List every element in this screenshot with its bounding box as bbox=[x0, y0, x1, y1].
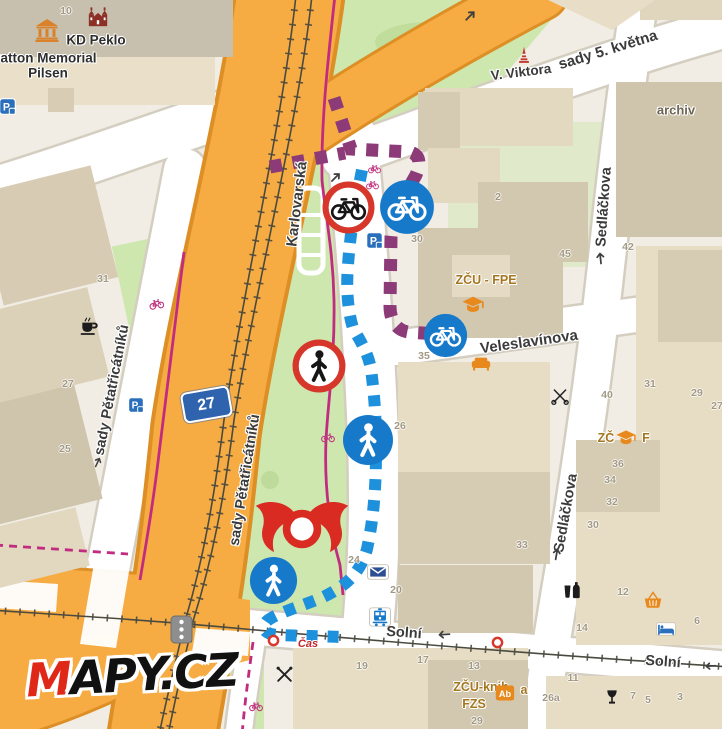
mapy-logo-m: M bbox=[25, 651, 72, 707]
street-label: Veleslavínova bbox=[479, 327, 579, 358]
bike-route-circle-icon[interactable] bbox=[379, 179, 435, 235]
house-number: 34 bbox=[604, 474, 616, 486]
sofa-icon[interactable] bbox=[471, 353, 491, 373]
house-number: 32 bbox=[606, 496, 618, 508]
house-number: 7 bbox=[630, 690, 636, 702]
cycleway-icon bbox=[366, 178, 379, 191]
one-way-arrow-icon bbox=[436, 626, 452, 642]
street-label: V. Viktora bbox=[490, 61, 552, 83]
house-number: 29 bbox=[471, 715, 483, 727]
hotel-icon[interactable] bbox=[656, 619, 676, 639]
house-number: 2 bbox=[495, 191, 501, 203]
house-number: 42 bbox=[622, 241, 634, 253]
no-pedestrian-sign-icon[interactable] bbox=[292, 339, 346, 393]
cycleway-icon bbox=[368, 162, 381, 175]
no-entry-dot-icon bbox=[491, 636, 504, 649]
house-number: 26a bbox=[542, 692, 560, 704]
cycleway-icon bbox=[249, 699, 263, 713]
restaurant-icon[interactable] bbox=[275, 665, 294, 684]
graduation-cap-icon[interactable] bbox=[616, 427, 636, 447]
house-number: 26 bbox=[394, 420, 406, 432]
cafe-icon[interactable] bbox=[79, 316, 99, 336]
one-way-arrow-icon bbox=[704, 659, 719, 674]
tram-stop-icon[interactable] bbox=[369, 606, 391, 628]
drink-icon[interactable] bbox=[563, 581, 581, 599]
pub-icon[interactable] bbox=[604, 689, 620, 705]
poi-label: ZČU - FPE bbox=[455, 273, 516, 287]
monument-icon[interactable] bbox=[515, 46, 533, 64]
house-number: 13 bbox=[468, 660, 480, 672]
house-number: 45 bbox=[559, 248, 571, 260]
one-way-arrow-icon bbox=[592, 250, 608, 266]
street-label: Solní bbox=[645, 653, 681, 671]
poi-label: Patton Memorial bbox=[0, 51, 97, 66]
house-number: 11 bbox=[567, 672, 578, 684]
street-label: Solní bbox=[386, 624, 422, 642]
house-number: 27 bbox=[62, 378, 74, 390]
road-closure-icon[interactable] bbox=[249, 496, 355, 562]
parking-icon[interactable] bbox=[0, 98, 16, 115]
poi-label: F bbox=[642, 431, 650, 445]
civic-building-icon[interactable] bbox=[87, 6, 109, 28]
mapy-logo[interactable]: MAPY.CZ bbox=[25, 643, 239, 708]
one-way-arrow-icon bbox=[547, 545, 564, 562]
map-canvas[interactable]: P bbox=[0, 0, 722, 729]
house-number: 30 bbox=[587, 519, 599, 531]
house-number: 33 bbox=[516, 539, 528, 551]
house-number: 19 bbox=[356, 660, 368, 672]
road-number: 27 bbox=[196, 394, 217, 415]
house-number: 12 bbox=[617, 586, 629, 598]
street-label: sady 5. května bbox=[556, 27, 659, 73]
house-number: 36 bbox=[612, 458, 624, 470]
house-number: 27 bbox=[711, 400, 722, 412]
parking-icon[interactable] bbox=[128, 397, 144, 413]
cycleway-icon bbox=[321, 430, 335, 444]
poi-label: ZČ bbox=[598, 431, 615, 445]
shop-basket-icon[interactable] bbox=[644, 591, 662, 609]
poi-label: KD Peklo bbox=[66, 33, 125, 48]
no-entry-dot-icon bbox=[267, 634, 280, 647]
house-number: 31 bbox=[97, 273, 109, 285]
house-number: 3 bbox=[677, 691, 683, 703]
street-label: Karlovarská bbox=[283, 160, 310, 247]
house-number: 14 bbox=[576, 622, 588, 634]
one-way-arrow-icon bbox=[459, 5, 482, 28]
foot-route-circle-icon[interactable] bbox=[342, 414, 394, 466]
house-number: 20 bbox=[390, 584, 402, 596]
street-label: Sedláčkova bbox=[593, 167, 615, 248]
parking-icon[interactable] bbox=[366, 232, 383, 249]
poi-label: FZS bbox=[462, 697, 486, 711]
house-number: 29 bbox=[691, 387, 703, 399]
poi-label: Čas bbox=[298, 638, 318, 650]
house-number: 5 bbox=[645, 694, 651, 706]
graduation-cap-icon[interactable] bbox=[462, 293, 484, 315]
post-icon[interactable] bbox=[367, 561, 389, 583]
bike-route-circle-icon[interactable] bbox=[423, 313, 468, 358]
cycleway-icon bbox=[147, 294, 164, 311]
poi-label: archiv bbox=[657, 103, 695, 118]
house-number: 17 bbox=[417, 654, 429, 666]
house-number: 31 bbox=[644, 378, 656, 390]
poi-label: a bbox=[521, 683, 528, 697]
museum-icon[interactable] bbox=[35, 18, 59, 42]
house-number: 10 bbox=[60, 5, 72, 17]
foot-route-circle-icon[interactable] bbox=[249, 556, 298, 605]
library-icon[interactable] bbox=[495, 683, 515, 703]
street-label: Sedláčkova bbox=[551, 472, 581, 553]
map-overlay: Karlovarskásady Pětatřicátníkůsady Pětat… bbox=[0, 0, 722, 729]
house-number: 25 bbox=[59, 443, 71, 455]
hairdresser-icon[interactable] bbox=[551, 387, 569, 405]
house-number: 40 bbox=[601, 389, 613, 401]
house-number: 6 bbox=[694, 615, 700, 627]
poi-label: Pilsen bbox=[28, 66, 68, 81]
street-label: sady Pětatřicátníků bbox=[91, 323, 132, 457]
mapy-logo-rest: APY.CZ bbox=[68, 643, 238, 706]
